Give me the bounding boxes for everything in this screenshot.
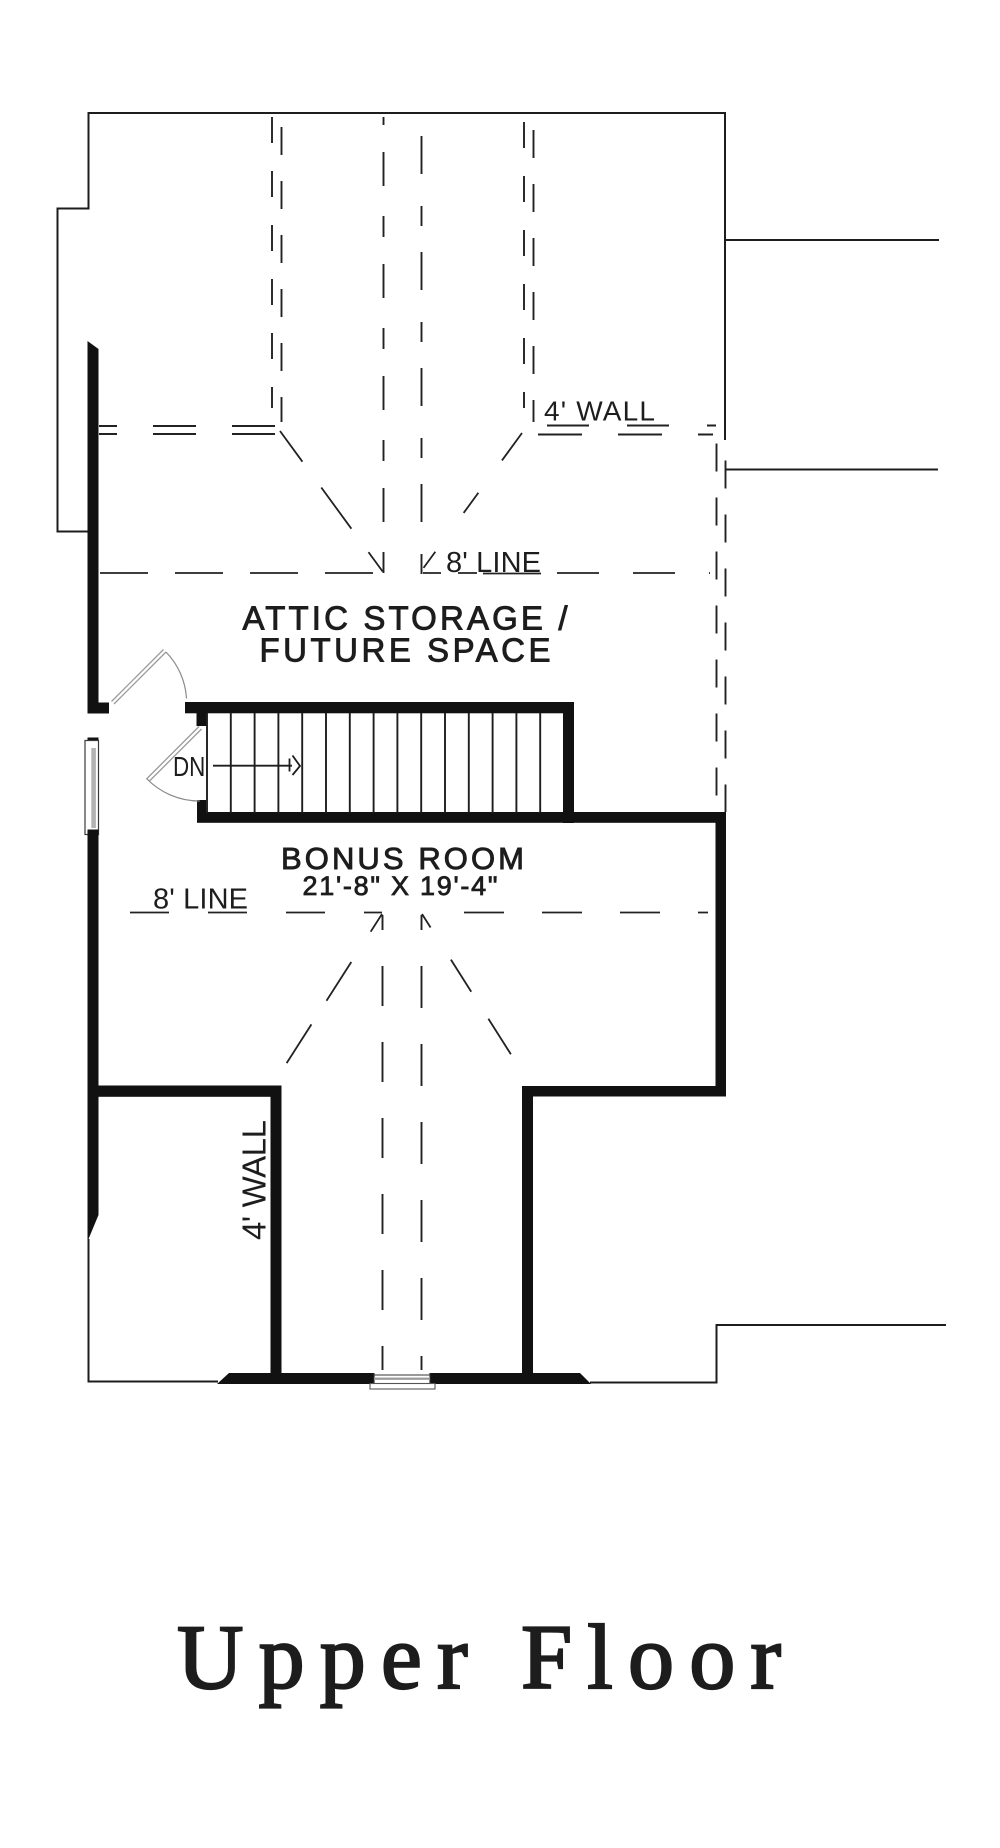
svg-text:4' WALL: 4' WALL [544, 396, 655, 427]
svg-text:FUTURE SPACE: FUTURE SPACE [260, 632, 551, 669]
svg-text:8' LINE: 8' LINE [153, 884, 248, 916]
svg-text:Upper Floor: Upper Floor [177, 1606, 781, 1708]
svg-text:DN: DN [173, 752, 205, 783]
svg-text:8' LINE: 8' LINE [446, 547, 541, 579]
svg-text:4' WALL: 4' WALL [236, 1120, 273, 1240]
svg-text:21'-8" X 19'-4": 21'-8" X 19'-4" [303, 871, 498, 901]
